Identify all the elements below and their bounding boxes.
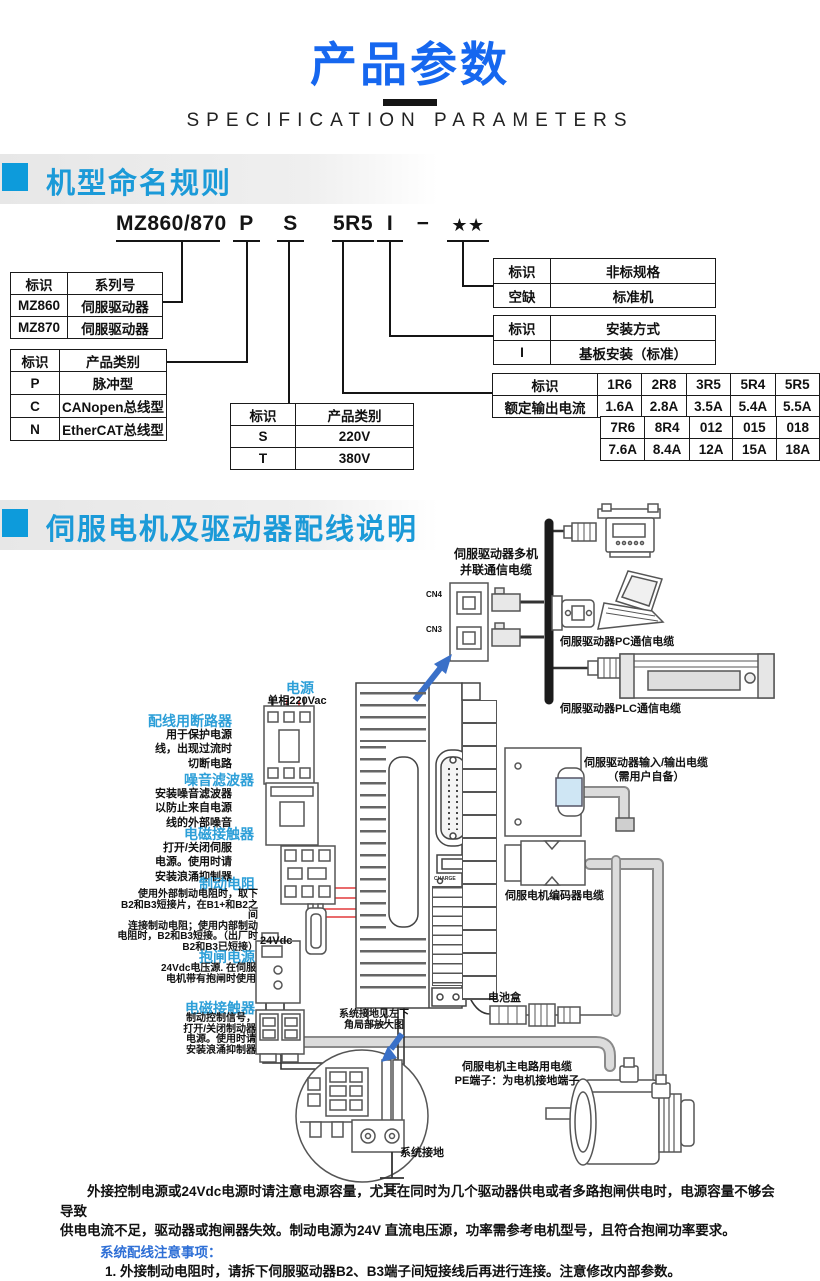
db9-connector [552,596,594,630]
battery-box [490,1004,612,1026]
multi-comm-cable-label: 伺服驱动器多机 并联通信电缆 [446,547,546,578]
comm-connector-plc [588,658,624,678]
brake-power-desc: 24Vdc电压源. 在伺服 电机带有抱闸时使用 [126,964,256,985]
drive-vents-top [360,692,426,742]
system-notes: 外接控制电源或24Vdc电源时请注意电源容量，尤其在同时为几个驱动器供电或者多路… [60,1182,786,1281]
ground-detail-magnifier [296,1050,428,1182]
encoder-cable-label: 伺服电机编码器电缆 [505,889,615,903]
wiring-diagram [0,0,820,1281]
battery-box-label: 电池盒 [488,991,538,1005]
cn4-label: CN4 [426,590,448,600]
comm-connector-top [564,523,596,541]
cn-panel [450,583,488,661]
charge-label: CHARGE [434,876,464,882]
brake-contactor [256,1010,304,1062]
plc-device [620,654,774,698]
noise-filter [266,783,318,845]
power-sub-label: 单相220Vac [255,694,339,708]
brake-resistor-desc: 使用外部制动电阻时，取下 B2和B3短接片，在B1+和B2之间 连接制动电阻；使… [116,890,258,953]
io-cable-label: 伺服驱动器输入/输出电缆 （需用户自备） [578,756,714,785]
drive-heatsink [462,700,497,1000]
magnetic-contactor [281,846,335,904]
notes-heading: 系统配线注意事项： [100,1243,786,1263]
pc-cable-label: 伺服驱动器PC通信电缆 [560,635,690,649]
drive-vents-bottom [360,938,426,996]
brake-contactor-desc: 制动控制信号， 打开/关闭制动器 电源。使用时请 安装浪涌抑制器 [134,1014,256,1056]
brake-resistor [306,904,326,954]
v24-label: 24Vdc [260,934,304,948]
drive-vents-left [360,746,386,934]
circuit-breaker [264,698,314,784]
system-ground-label: 系统接地 [400,1146,460,1160]
spec-page: 产品参数 SPECIFICATION PARAMETERS 机型命名规则 MZ8… [0,0,820,1281]
motor-cable-label: 伺服电机主电路用电缆 PE端子：为电机接地端子 [452,1060,582,1089]
handheld-operator [598,504,660,557]
laptop [598,571,663,629]
notes-paragraph: 外接控制电源或24Vdc电源时请注意电源容量，尤其在同时为几个驱动器供电或者多路… [60,1182,786,1241]
encoder-connector [505,841,585,885]
plc-cable-label: 伺服驱动器PLC通信电缆 [560,702,700,716]
breaker-desc: 用于保护电源 线，出现过流时 切断电路 [118,728,232,771]
ground-note-label: 系统接地见左下 角局部放大图 [336,1010,412,1031]
rj45-plugs [492,588,520,646]
cn3-label: CN3 [426,625,448,635]
notes-item-1: 1. 外接制动电阻时，请拆下伺服驱动器B2、B3端子间短接线后再进行连接。注意修… [105,1262,786,1281]
drive-terminal-strip [432,886,463,986]
